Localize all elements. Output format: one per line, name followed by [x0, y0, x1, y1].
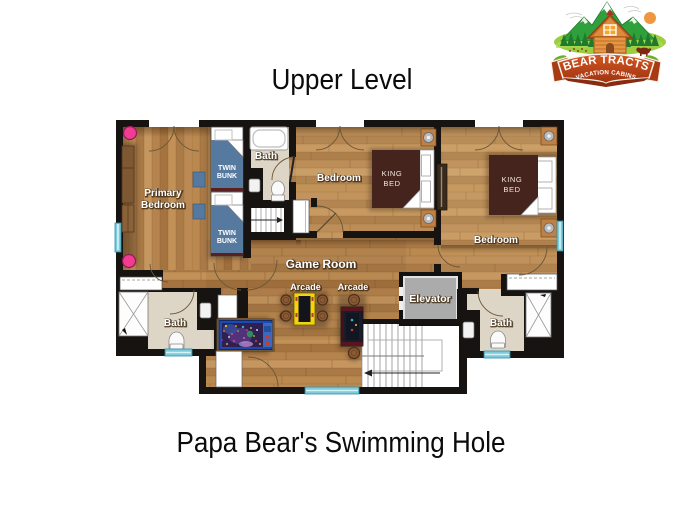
svg-text:Arcade: Arcade — [338, 282, 369, 292]
svg-text:KING: KING — [382, 169, 403, 178]
svg-text:Bath: Bath — [490, 318, 512, 329]
svg-text:BED: BED — [503, 185, 520, 194]
svg-text:Bedroom: Bedroom — [141, 200, 185, 211]
svg-text:BED: BED — [383, 179, 400, 188]
svg-text:Primary: Primary — [144, 188, 182, 199]
svg-text:Upper Level: Upper Level — [272, 64, 413, 96]
svg-text:Bath: Bath — [164, 318, 186, 329]
svg-text:Papa Bear's Swimming Hole: Papa Bear's Swimming Hole — [177, 427, 506, 459]
svg-text:BUNK: BUNK — [217, 238, 237, 245]
svg-text:BUNK: BUNK — [217, 173, 237, 180]
svg-text:Elevator: Elevator — [409, 293, 450, 305]
svg-text:Arcade: Arcade — [290, 282, 321, 292]
svg-text:TWIN: TWIN — [218, 230, 236, 237]
svg-text:Game Room: Game Room — [286, 257, 357, 271]
svg-text:TWIN: TWIN — [218, 165, 236, 172]
svg-text:Bedroom: Bedroom — [474, 235, 518, 246]
svg-text:Bath: Bath — [255, 151, 277, 162]
svg-text:KING: KING — [502, 175, 523, 184]
svg-text:Bedroom: Bedroom — [317, 173, 361, 184]
